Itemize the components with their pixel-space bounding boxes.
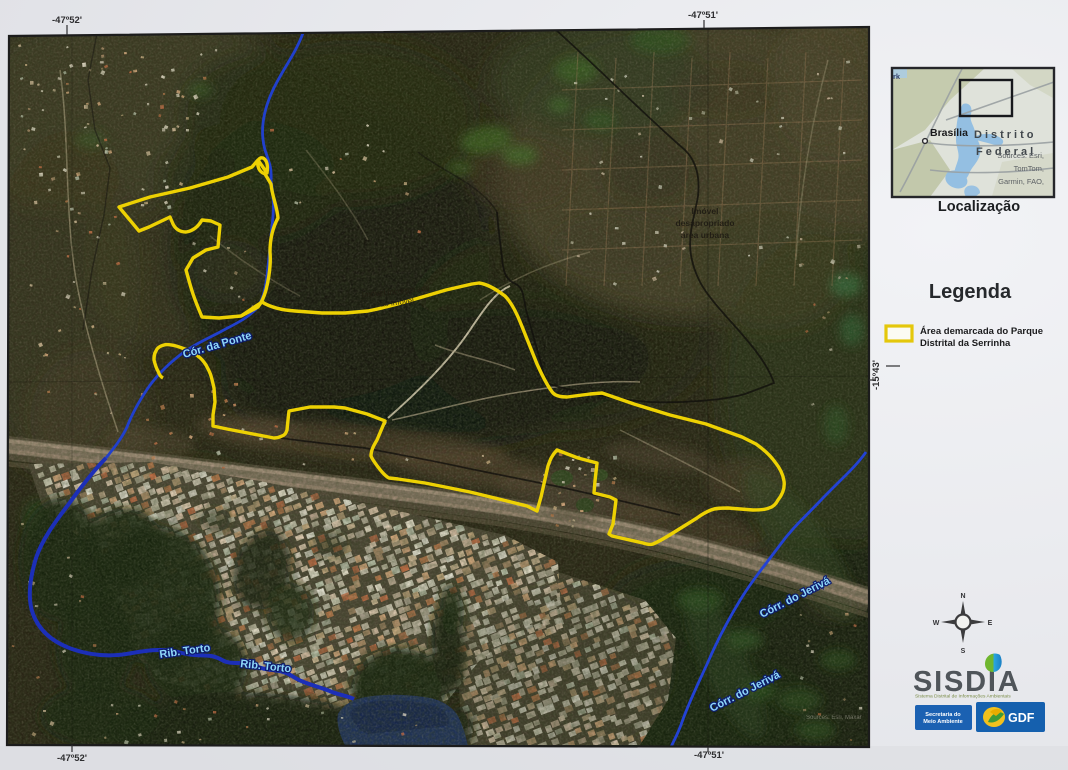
svg-text:Localização: Localização <box>938 199 1020 215</box>
svg-text:Meio Ambiente: Meio Ambiente <box>923 719 963 725</box>
svg-text:N: N <box>960 593 965 600</box>
svg-text:Sources: Esri,: Sources: Esri, <box>997 151 1044 160</box>
svg-text:-47º51': -47º51' <box>688 10 718 21</box>
svg-text:-15º43': -15º43' <box>871 360 882 390</box>
svg-text:Secretaria do: Secretaria do <box>925 712 961 718</box>
svg-text:SISDIA: SISDIA <box>913 666 1021 698</box>
svg-text:Sources: Esri, Maxar: Sources: Esri, Maxar <box>806 715 862 721</box>
svg-text:GDF: GDF <box>1008 711 1035 725</box>
svg-text:Legenda: Legenda <box>929 281 1012 303</box>
svg-text:S: S <box>961 648 966 655</box>
svg-text:Garmin, FAO,: Garmin, FAO, <box>998 177 1044 186</box>
svg-text:Brasília: Brasília <box>930 127 968 139</box>
svg-text:área urbana: área urbana <box>681 230 729 240</box>
svg-text:W: W <box>933 620 940 627</box>
svg-text:Sistema Distrital de Informaçõ: Sistema Distrital de Informações Ambient… <box>915 694 1011 700</box>
svg-text:TomTom,: TomTom, <box>1014 164 1044 173</box>
svg-text:-47º52': -47º52' <box>52 15 82 26</box>
svg-text:-47º52': -47º52' <box>57 753 87 764</box>
svg-text:E: E <box>988 620 993 627</box>
svg-text:Distrito: Distrito <box>974 129 1037 141</box>
svg-text:rk: rk <box>893 72 901 81</box>
svg-text:Imóvel: Imóvel <box>692 206 719 216</box>
svg-text:Área demarcada do Parque: Área demarcada do Parque <box>920 326 1043 337</box>
svg-text:Distrital da Serrinha: Distrital da Serrinha <box>920 338 1011 349</box>
svg-text:-47º51': -47º51' <box>694 750 724 761</box>
svg-text:desapropriado: desapropriado <box>675 218 734 228</box>
